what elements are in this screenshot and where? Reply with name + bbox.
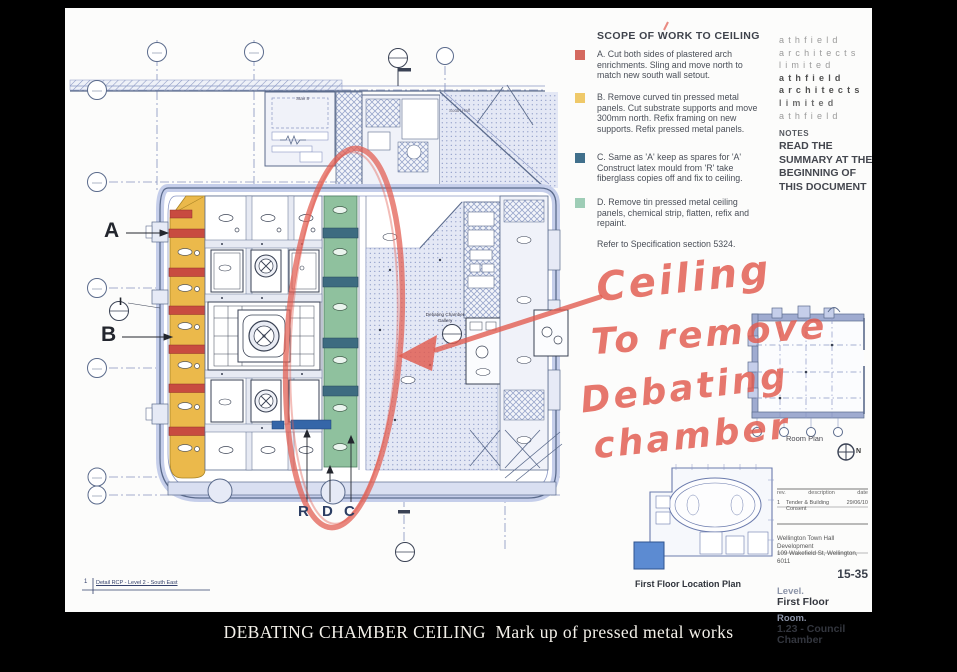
zone-d-letter: D — [322, 503, 333, 520]
logo-line: architects — [779, 47, 864, 60]
south-hall-label: South Hall — [449, 108, 470, 113]
athfield-logo: athfield architects limited athfield arc… — [779, 34, 864, 122]
revision-header: rev. description date — [777, 490, 868, 496]
logo-line: architects — [779, 84, 864, 97]
swatch-work-d — [575, 198, 585, 208]
zone-a-letter: A — [104, 219, 119, 243]
swatch-work-c — [575, 153, 585, 163]
logo-line: limited — [779, 97, 864, 110]
notes-label: NOTES — [779, 129, 809, 138]
notes-text: READ THE SUMMARY AT THE BEGINNING OF THI… — [779, 140, 879, 194]
logo-line: athfield — [779, 110, 864, 123]
sheet-number: 15-35 — [777, 567, 868, 581]
level-value: First Floor — [777, 597, 861, 608]
rev-value: 1 — [777, 500, 786, 512]
scope-item-c: C. Same as 'A' keep as spares for 'A' Co… — [597, 152, 761, 184]
gallery-label: Debating Chamber Gallery — [420, 312, 470, 323]
zone-b-letter: B — [101, 323, 116, 347]
panel-r-letter: R — [298, 503, 309, 520]
section-i-letter: I — [119, 296, 122, 308]
rev-description: Tender & Building Consent — [786, 500, 844, 512]
desc-col: description — [808, 490, 835, 496]
logo-line: athfield — [779, 72, 864, 85]
zone-c-letter: C — [344, 503, 355, 520]
scope-title: SCOPE OF WORK TO CEILING — [597, 30, 760, 42]
scanned-drawing-page: SCOPE OF WORK TO CEILING A. Cut both sid… — [0, 0, 957, 672]
project-name: Wellington Town Hall Development — [777, 535, 868, 550]
swatch-work-b — [575, 93, 585, 103]
scope-item-a: A. Cut both sides of plastered arch enri… — [597, 49, 761, 81]
slide-caption: DEBATING CHAMBER CEILING Mark up of pres… — [0, 622, 957, 643]
logo-line: limited — [779, 59, 864, 72]
project-address: 109 Wakefield St, Wellington, 6011 — [777, 550, 868, 565]
swatch-work-a — [575, 50, 585, 60]
north-label: N — [856, 448, 861, 455]
rev-col: rev. — [777, 490, 786, 496]
logo-line: athfield — [779, 34, 864, 47]
scope-item-b: B. Remove curved tin pressed metal panel… — [597, 92, 761, 134]
rev-date: 29/06/10 — [844, 500, 868, 512]
scope-reference: Refer to Specification section 5324. — [597, 239, 735, 249]
location-plan-label: First Floor Location Plan — [635, 579, 741, 589]
stair-label: Stair 8 — [296, 96, 309, 101]
detail-caption: Detail RCP - Level 2 - South East — [96, 580, 178, 586]
detail-number: 1 — [84, 579, 87, 585]
revision-row: 1 Tender & Building Consent 29/06/10 — [777, 500, 868, 512]
highlighted-room-square — [634, 542, 664, 569]
scope-item-d: D. Remove tin pressed metal ceiling pane… — [597, 197, 761, 229]
date-col: date — [857, 490, 868, 496]
panel-r-blue-bar — [272, 420, 331, 429]
